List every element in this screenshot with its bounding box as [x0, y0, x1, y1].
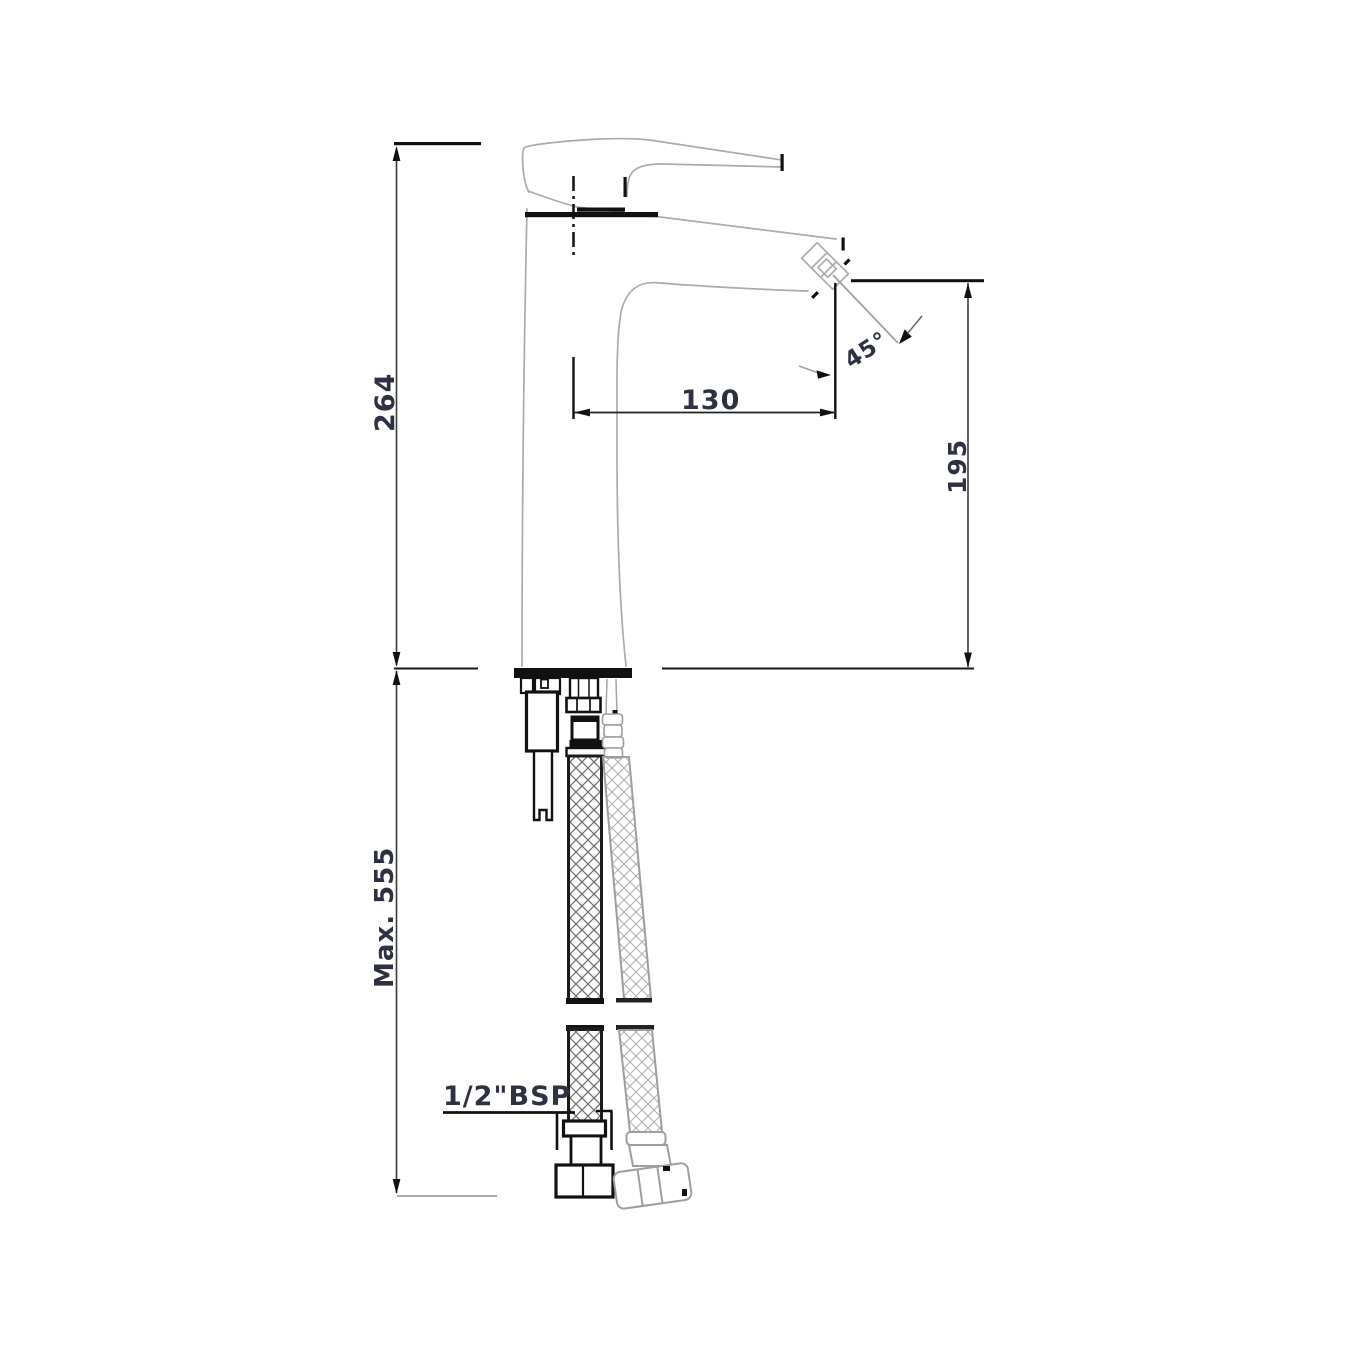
- faucet-spout-top: [652, 216, 836, 239]
- hose-hex-nut: [567, 698, 601, 712]
- left-hose-fitting: [556, 1121, 613, 1197]
- mounting-hardware: [521, 678, 560, 820]
- aerator-side-tick: [843, 258, 850, 265]
- faucet-column-left-edge: [522, 209, 527, 666]
- base-plate: [514, 668, 632, 678]
- handle-end-tick: [781, 154, 784, 171]
- faucet-body-outline: [522, 139, 836, 666]
- mounting-stud-fork: [534, 751, 552, 820]
- handle-pivot-tick: [624, 177, 627, 197]
- dim-264-label: 264: [370, 373, 401, 432]
- faucet-handle: [523, 139, 782, 197]
- dim-195-label: 195: [943, 439, 972, 494]
- left-hose: [566, 756, 604, 1122]
- dimension-drawing-canvas: 264 Max. 555 195 130 45°: [0, 0, 1350, 1350]
- right-hose-fitting: [613, 1132, 692, 1209]
- aerator-top-tick: [842, 238, 845, 251]
- dim-264: 264: [370, 142, 481, 667]
- centerline-cross: [525, 154, 784, 257]
- aerator: [802, 238, 851, 299]
- right-fitting-hex-nut: [613, 1162, 692, 1209]
- dim-max-555: Max. 555: [370, 670, 497, 1196]
- dim-130: 130: [574, 283, 837, 419]
- supply-connections: [567, 678, 624, 758]
- thread-bsp-label: 1/2"BSP: [443, 1081, 571, 1112]
- faucet-technical-drawing: 264 Max. 555 195 130 45°: [0, 0, 1350, 1350]
- left-fitting-hex-nut: [556, 1165, 613, 1197]
- aerator-bottom-tick: [811, 291, 819, 299]
- angle-annotation: 45°: [833, 275, 922, 374]
- right-hose: [603, 757, 662, 1132]
- dim-130-label: 130: [681, 385, 740, 416]
- mounting-nut-block: [527, 692, 558, 751]
- angle-45-label: 45°: [840, 327, 893, 374]
- dim-max-555-label: Max. 555: [370, 847, 400, 988]
- faucet-spout: [617, 283, 808, 666]
